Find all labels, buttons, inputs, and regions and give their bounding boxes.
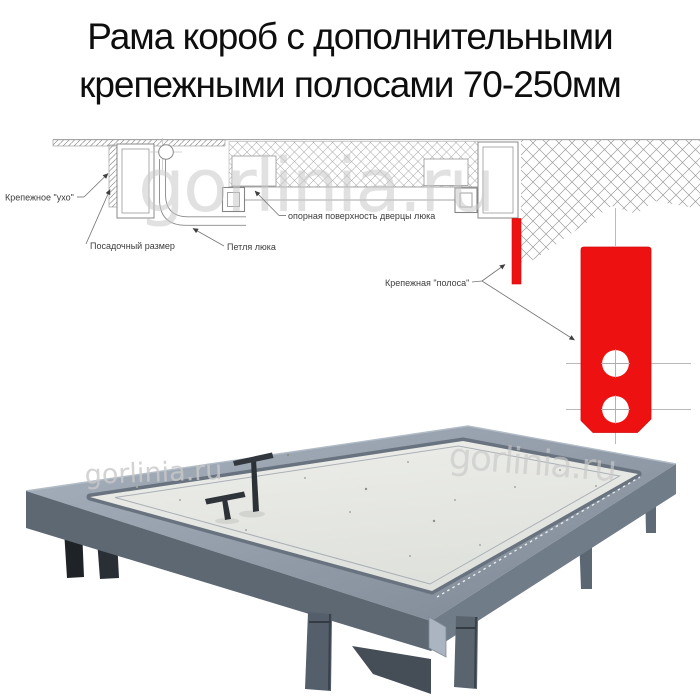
watermark-text-photo-left: gorlinia.ru xyxy=(84,455,223,491)
leader-ear xyxy=(84,174,108,198)
label-support-surface: опорная поверхность дверцы люка xyxy=(288,211,435,221)
diagram-and-photo-canvas: gorlinia.ru Крепежное "ухо" Поса xyxy=(0,0,700,700)
label-mounting-size: Посадочный размер xyxy=(90,241,175,251)
leg-front-1-notch xyxy=(309,621,331,623)
product-image: Рама короб с дополнительными крепежными … xyxy=(0,0,700,700)
handle-shadow-rear xyxy=(239,511,265,518)
ear-flange-hatched xyxy=(109,145,117,207)
label-fastening-ear: Крепежное "ухо" xyxy=(5,193,74,203)
label-hatch-hinge: Петля люка xyxy=(227,242,276,252)
leader-mount xyxy=(86,190,110,245)
fastening-strip-red xyxy=(512,219,521,285)
leader-strip-dash xyxy=(472,281,482,282)
leader-hinge xyxy=(193,229,224,247)
leg-front-1-edge xyxy=(329,614,330,690)
product-photo: gorlinia.ru gorlinia.ru xyxy=(26,426,676,694)
wall-crosshatch xyxy=(521,140,700,262)
label-fastening-strip: Крепежная "полоса" xyxy=(385,278,469,288)
frame-inner-wall-shadow xyxy=(352,646,431,694)
leg-front-1 xyxy=(305,612,332,691)
leader-strip-b xyxy=(482,281,575,340)
leader-strip-a xyxy=(482,265,505,282)
leg-front-2-notch xyxy=(456,627,476,629)
